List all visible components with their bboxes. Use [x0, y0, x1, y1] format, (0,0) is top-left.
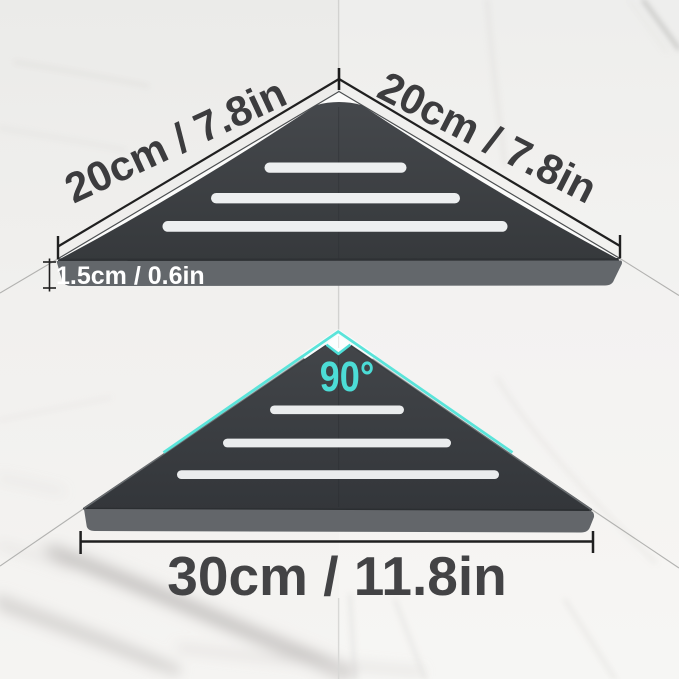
svg-text:90°: 90° [320, 353, 375, 400]
svg-text:1.5cm / 0.6in: 1.5cm / 0.6in [56, 262, 205, 290]
svg-text:30cm / 11.8in: 30cm / 11.8in [167, 545, 506, 607]
